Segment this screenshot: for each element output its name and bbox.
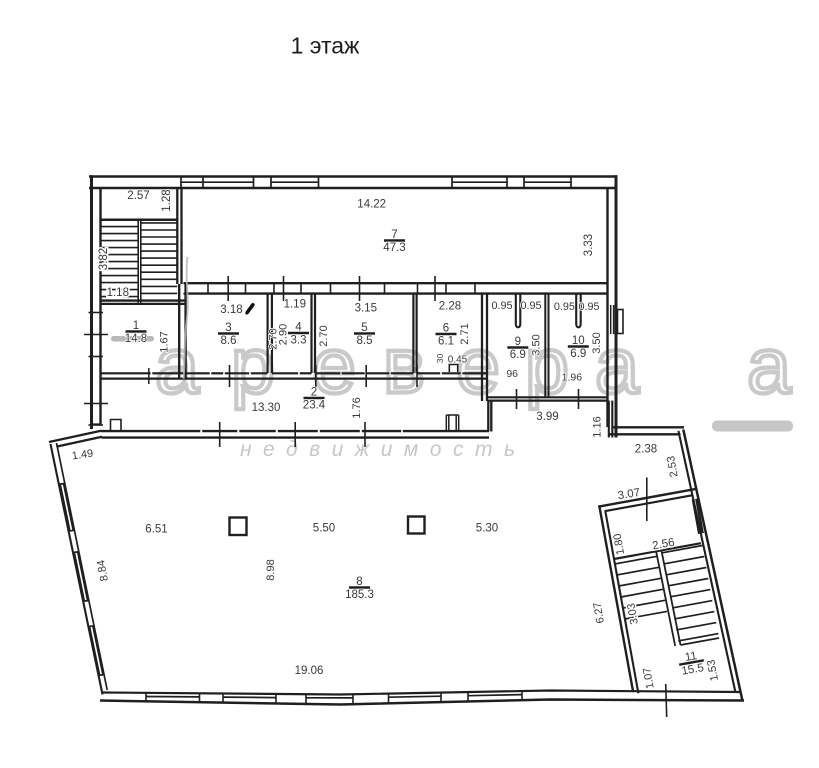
svg-text:0.45: 0.45 <box>448 355 468 366</box>
svg-text:19.06: 19.06 <box>295 665 324 677</box>
svg-text:3.18: 3.18 <box>220 304 242 316</box>
svg-text:3.99: 3.99 <box>536 411 558 423</box>
svg-text:2: 2 <box>311 387 317 399</box>
svg-text:3.50: 3.50 <box>591 332 603 353</box>
svg-text:2.71: 2.71 <box>459 323 471 344</box>
svg-text:3.50: 3.50 <box>531 334 543 355</box>
svg-text:1.18: 1.18 <box>107 287 129 299</box>
svg-text:5.50: 5.50 <box>313 523 335 535</box>
svg-text:6: 6 <box>443 323 449 335</box>
svg-text:23.4: 23.4 <box>303 400 326 412</box>
svg-text:1.67: 1.67 <box>159 331 171 352</box>
svg-text:а: а <box>747 321 791 410</box>
svg-text:1: 1 <box>133 320 139 332</box>
svg-text:14.8: 14.8 <box>125 333 147 345</box>
svg-text:3: 3 <box>225 322 231 334</box>
svg-text:47.3: 47.3 <box>383 242 405 254</box>
svg-text:0.95: 0.95 <box>520 300 541 312</box>
svg-text:2.28: 2.28 <box>439 301 461 313</box>
svg-text:1.19: 1.19 <box>284 299 306 311</box>
svg-text:р: р <box>525 321 569 410</box>
svg-text:2.70: 2.70 <box>318 325 330 346</box>
svg-text:2.57: 2.57 <box>127 190 149 202</box>
svg-text:6.9: 6.9 <box>510 349 526 361</box>
svg-text:0.95: 0.95 <box>491 300 512 312</box>
svg-text:1.16: 1.16 <box>592 416 604 437</box>
svg-text:10: 10 <box>572 335 585 347</box>
svg-text:1.28: 1.28 <box>161 189 173 211</box>
svg-text:9: 9 <box>515 336 521 348</box>
svg-text:2.38: 2.38 <box>635 444 657 456</box>
svg-text:1.96: 1.96 <box>562 372 583 384</box>
svg-text:3.33: 3.33 <box>583 234 595 256</box>
svg-text:0.95: 0.95 <box>578 301 599 313</box>
svg-text:5.30: 5.30 <box>476 523 498 535</box>
svg-text:в: в <box>383 321 425 410</box>
svg-text:3.82: 3.82 <box>98 248 110 270</box>
svg-text:4: 4 <box>295 322 302 334</box>
svg-text:6.1: 6.1 <box>438 336 454 348</box>
svg-text:8.98: 8.98 <box>265 559 277 580</box>
svg-text:1.76: 1.76 <box>351 397 363 418</box>
svg-text:3.3: 3.3 <box>291 335 307 347</box>
svg-text:3.15: 3.15 <box>355 303 377 315</box>
svg-text:8.5: 8.5 <box>357 335 373 347</box>
svg-text:1 этаж: 1 этаж <box>291 33 360 59</box>
svg-text:недвижимость: недвижимость <box>240 438 527 461</box>
svg-text:6.51: 6.51 <box>145 524 167 536</box>
svg-text:0.95: 0.95 <box>554 301 575 313</box>
svg-text:8.6: 8.6 <box>221 335 237 347</box>
svg-text:8: 8 <box>356 576 362 588</box>
svg-text:2.90: 2.90 <box>278 324 290 345</box>
svg-text:6.9: 6.9 <box>570 348 586 360</box>
svg-text:30: 30 <box>435 354 445 364</box>
svg-text:5: 5 <box>361 322 367 334</box>
svg-text:14.22: 14.22 <box>357 199 386 211</box>
svg-text:13.30: 13.30 <box>252 402 281 414</box>
svg-text:185.3: 185.3 <box>345 589 374 601</box>
svg-text:96: 96 <box>506 368 518 380</box>
svg-text:7: 7 <box>391 229 397 241</box>
